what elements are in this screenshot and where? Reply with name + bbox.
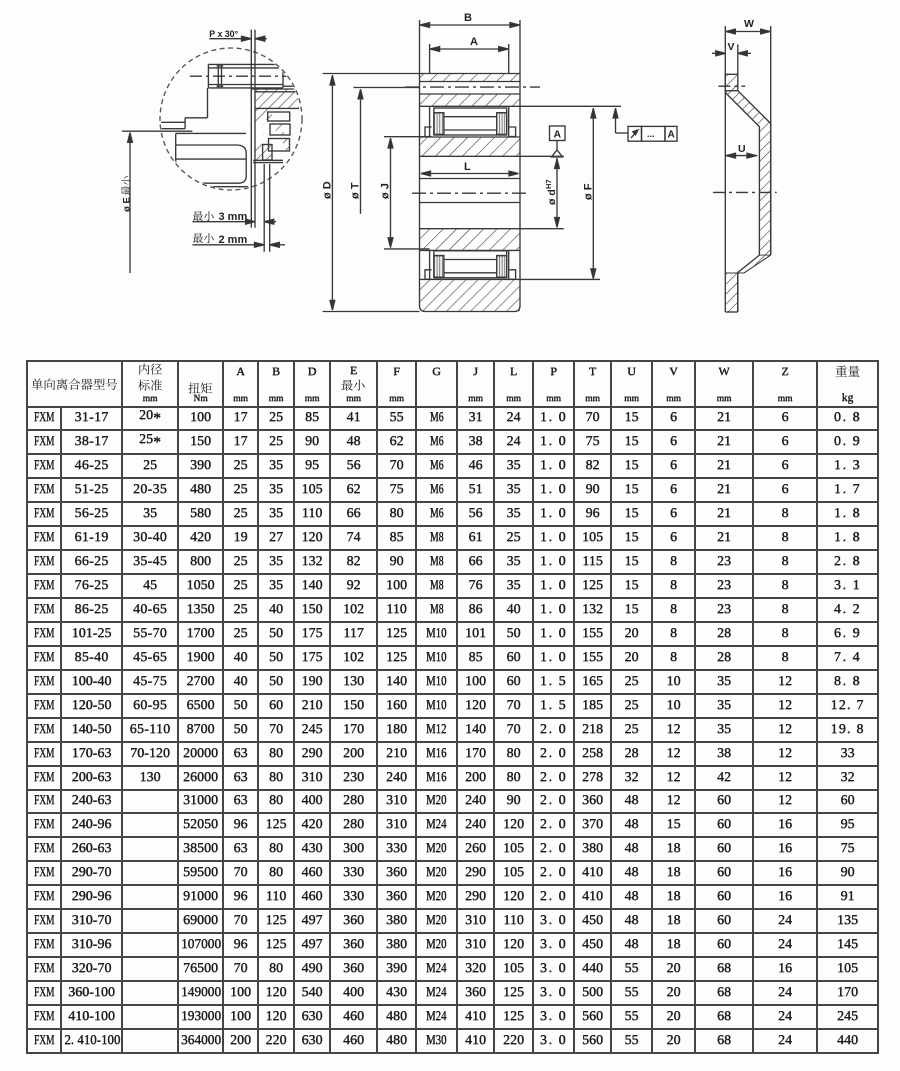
- svg-text:...: ...: [647, 129, 655, 139]
- svg-text:A: A: [668, 130, 675, 141]
- svg-text:H7: H7: [544, 179, 553, 189]
- svg-text:ø E: ø E: [122, 197, 133, 212]
- svg-text:ø D: ø D: [322, 181, 334, 199]
- svg-text:P x 30°: P x 30°: [209, 29, 238, 39]
- svg-text:L: L: [464, 161, 471, 173]
- svg-text:A: A: [554, 129, 562, 141]
- svg-text:ø J: ø J: [380, 183, 392, 199]
- svg-text:A: A: [470, 36, 478, 48]
- svg-text:V: V: [728, 41, 735, 53]
- svg-text:W: W: [744, 18, 754, 30]
- svg-text:ø F: ø F: [582, 183, 594, 200]
- svg-text:U: U: [738, 143, 746, 155]
- svg-text:ø d: ø d: [546, 189, 558, 205]
- svg-text:ø T: ø T: [350, 182, 362, 199]
- svg-text:B: B: [464, 12, 472, 24]
